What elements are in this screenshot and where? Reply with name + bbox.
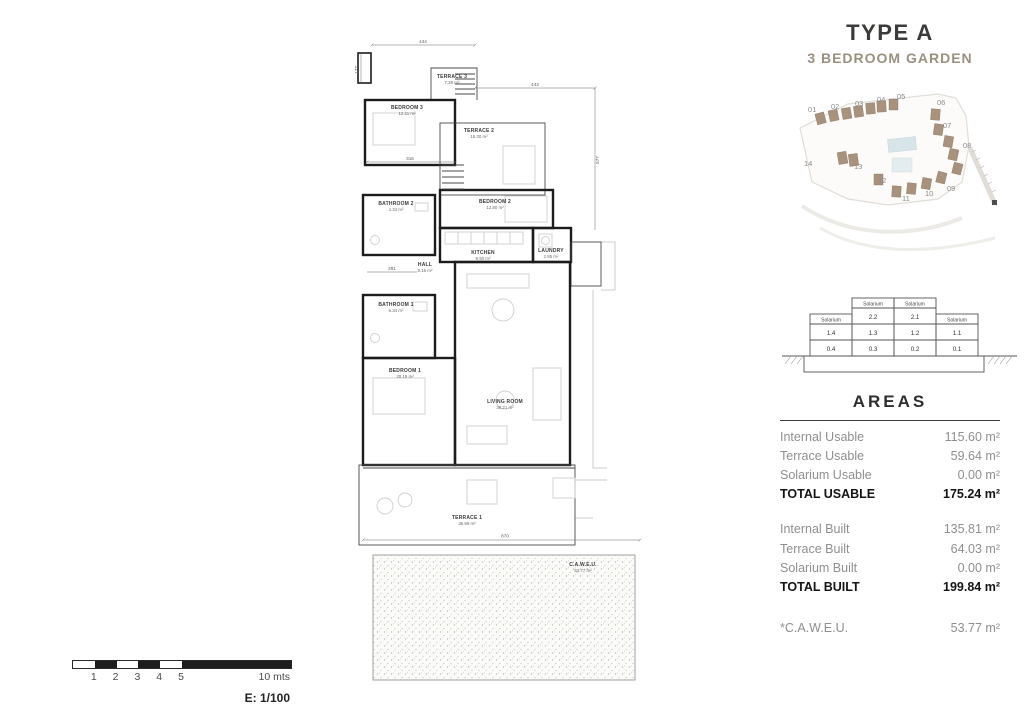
area-label: Internal Built <box>780 522 849 536</box>
area-label: Solarium Built <box>780 561 857 575</box>
room-bedroom1-area: 20.19 m² <box>396 374 414 379</box>
building-section-diagram: Solarium Solarium 2.2 2.1 Solarium Solar… <box>782 294 1017 378</box>
area-label: Terrace Usable <box>780 449 864 463</box>
areas-divider <box>780 420 1000 421</box>
room-bathroom2-area: 4.34 m² <box>389 207 404 212</box>
dim-577: 577 <box>595 156 600 164</box>
solarium-header-mid-right: Solarium <box>905 302 925 308</box>
unit-13: 13 <box>854 162 862 171</box>
dim-177: 177 <box>354 66 359 74</box>
area-row-terrace-usable: Terrace Usable 59.64 m² <box>780 446 1000 465</box>
room-laundry-area: 2.85 m² <box>544 254 559 259</box>
area-label: TOTAL USABLE <box>780 487 875 501</box>
unit-05: 05 <box>897 92 905 101</box>
area-value: 135.81 m² <box>944 522 1000 536</box>
scale-segment <box>95 661 117 668</box>
unit-04: 04 <box>877 95 885 104</box>
scale-tick-3: 3 <box>134 671 140 683</box>
room-terrace2-area: 15.30 m² <box>470 134 488 139</box>
scale-tick-labels: 1 2 3 4 5 10 mts <box>72 669 290 683</box>
area-row-solarium-usable: Solarium Usable 0.00 m² <box>780 465 1000 484</box>
room-terrace1-area: 36.99 m² <box>458 521 476 526</box>
unit-10: 10 <box>925 189 933 198</box>
walls <box>358 53 601 545</box>
unit-09: 09 <box>947 184 955 193</box>
area-row-total-usable: TOTAL USABLE 175.24 m² <box>780 485 1000 504</box>
area-label: *C.A.W.E.U. <box>780 621 848 635</box>
scale-tick-4: 4 <box>156 671 162 683</box>
area-label: Terrace Built <box>780 542 849 556</box>
area-label: TOTAL BUILT <box>780 580 860 594</box>
garden-area <box>373 555 635 680</box>
area-row-caweu: *C.A.W.E.U. 53.77 m² <box>780 619 1000 638</box>
unit-0-3: 0.3 <box>869 346 878 353</box>
scale-segment <box>138 661 160 668</box>
unit-1-4: 1.4 <box>827 330 836 337</box>
dim-870: 870 <box>501 534 509 539</box>
area-value: 59.64 m² <box>951 449 1000 463</box>
unit-11: 11 <box>902 194 910 203</box>
spacer <box>780 597 1000 619</box>
area-row-internal-built: Internal Built 135.81 m² <box>780 520 1000 539</box>
unit-2-1: 2.1 <box>911 314 920 321</box>
unit-1-3: 1.3 <box>869 330 878 337</box>
solarium-header-outer-left: Solarium <box>821 318 841 324</box>
unit-06: 06 <box>937 98 945 107</box>
page-subtitle: 3 BEDROOM GARDEN <box>770 50 1010 66</box>
area-value: 199.84 m² <box>943 580 1000 594</box>
area-row-solarium-built: Solarium Built 0.00 m² <box>780 558 1000 577</box>
solarium-header-outer-right: Solarium <box>947 318 967 324</box>
unit-1-2: 1.2 <box>911 330 920 337</box>
room-bedroom2-area: 12.80 m² <box>486 205 504 210</box>
room-kitchen-area: 9.50 m² <box>476 256 491 261</box>
area-value: 53.77 m² <box>951 621 1000 635</box>
area-row-internal-usable: Internal Usable 115.60 m² <box>780 427 1000 446</box>
brochure-page: 444 177 443 577 316 291 870 TERRACE 3 7.… <box>0 0 1024 724</box>
site-plan: 01 02 03 04 05 06 07 08 09 10 11 12 13 1… <box>790 86 1015 261</box>
solarium-header-mid-left: Solarium <box>863 302 883 308</box>
scale-segment <box>182 661 291 668</box>
unit-12: 12 <box>878 176 886 185</box>
context-outlines <box>359 242 615 545</box>
area-value: 175.24 m² <box>943 487 1000 501</box>
dim-291: 291 <box>388 266 396 271</box>
scale-bar-graphic <box>72 660 292 669</box>
dim-444: 444 <box>419 39 427 44</box>
unit-0-4-highlighted: 0.4 <box>827 346 836 353</box>
floor-plan: 444 177 443 577 316 291 870 TERRACE 3 7.… <box>355 28 665 688</box>
area-value: 64.03 m² <box>951 542 1000 556</box>
garden-caweu-area: 53.77 m² <box>574 568 592 573</box>
dim-443: 443 <box>531 82 539 87</box>
unit-01: 01 <box>808 105 816 114</box>
section-cells: Solarium Solarium 2.2 2.1 Solarium Solar… <box>782 298 1017 372</box>
unit-0-1-highlighted: 0.1 <box>953 346 962 353</box>
unit-07: 07 <box>943 121 951 130</box>
areas-heading: AREAS <box>780 392 1000 412</box>
scale-ratio-label: E: 1/100 <box>72 691 290 705</box>
unit-08: 08 <box>963 141 971 150</box>
scale-bar: 1 2 3 4 5 10 mts E: 1/100 <box>72 660 290 705</box>
scale-end-label: 10 mts <box>258 671 290 683</box>
area-label: Solarium Usable <box>780 468 872 482</box>
room-bedroom3-area: 12.11 m² <box>398 111 416 116</box>
scale-tick-2: 2 <box>113 671 119 683</box>
room-terrace3-area: 7.28 m² <box>445 80 460 85</box>
room-bathroom1-area: 5.34 m² <box>389 308 404 313</box>
unit-14: 14 <box>804 159 812 168</box>
area-row-total-built: TOTAL BUILT 199.84 m² <box>780 577 1000 596</box>
scale-tick-1: 1 <box>91 671 97 683</box>
unit-0-2: 0.2 <box>911 346 920 353</box>
furniture <box>371 113 576 514</box>
room-living-area: 38.21 m² <box>496 405 514 410</box>
unit-2-2: 2.2 <box>869 314 878 321</box>
page-title: TYPE A <box>770 20 1010 46</box>
area-value: 115.60 m² <box>945 430 1000 444</box>
ground-hatch <box>785 356 1012 364</box>
unit-02: 02 <box>831 102 839 111</box>
title-block: TYPE A 3 BEDROOM GARDEN <box>770 20 1010 66</box>
area-value: 0.00 m² <box>958 468 1000 482</box>
unit-03: 03 <box>855 99 863 108</box>
access-road <box>970 148 995 204</box>
spacer <box>780 504 1000 520</box>
area-label: Internal Usable <box>780 430 864 444</box>
area-row-terrace-built: Terrace Built 64.03 m² <box>780 539 1000 558</box>
scale-tick-5: 5 <box>178 671 184 683</box>
dim-316: 316 <box>406 156 414 161</box>
areas-panel: AREAS Internal Usable 115.60 m² Terrace … <box>780 392 1000 638</box>
unit-1-1: 1.1 <box>953 330 962 337</box>
room-hall-area: 8.16 m² <box>418 268 433 273</box>
area-value: 0.00 m² <box>958 561 1000 575</box>
